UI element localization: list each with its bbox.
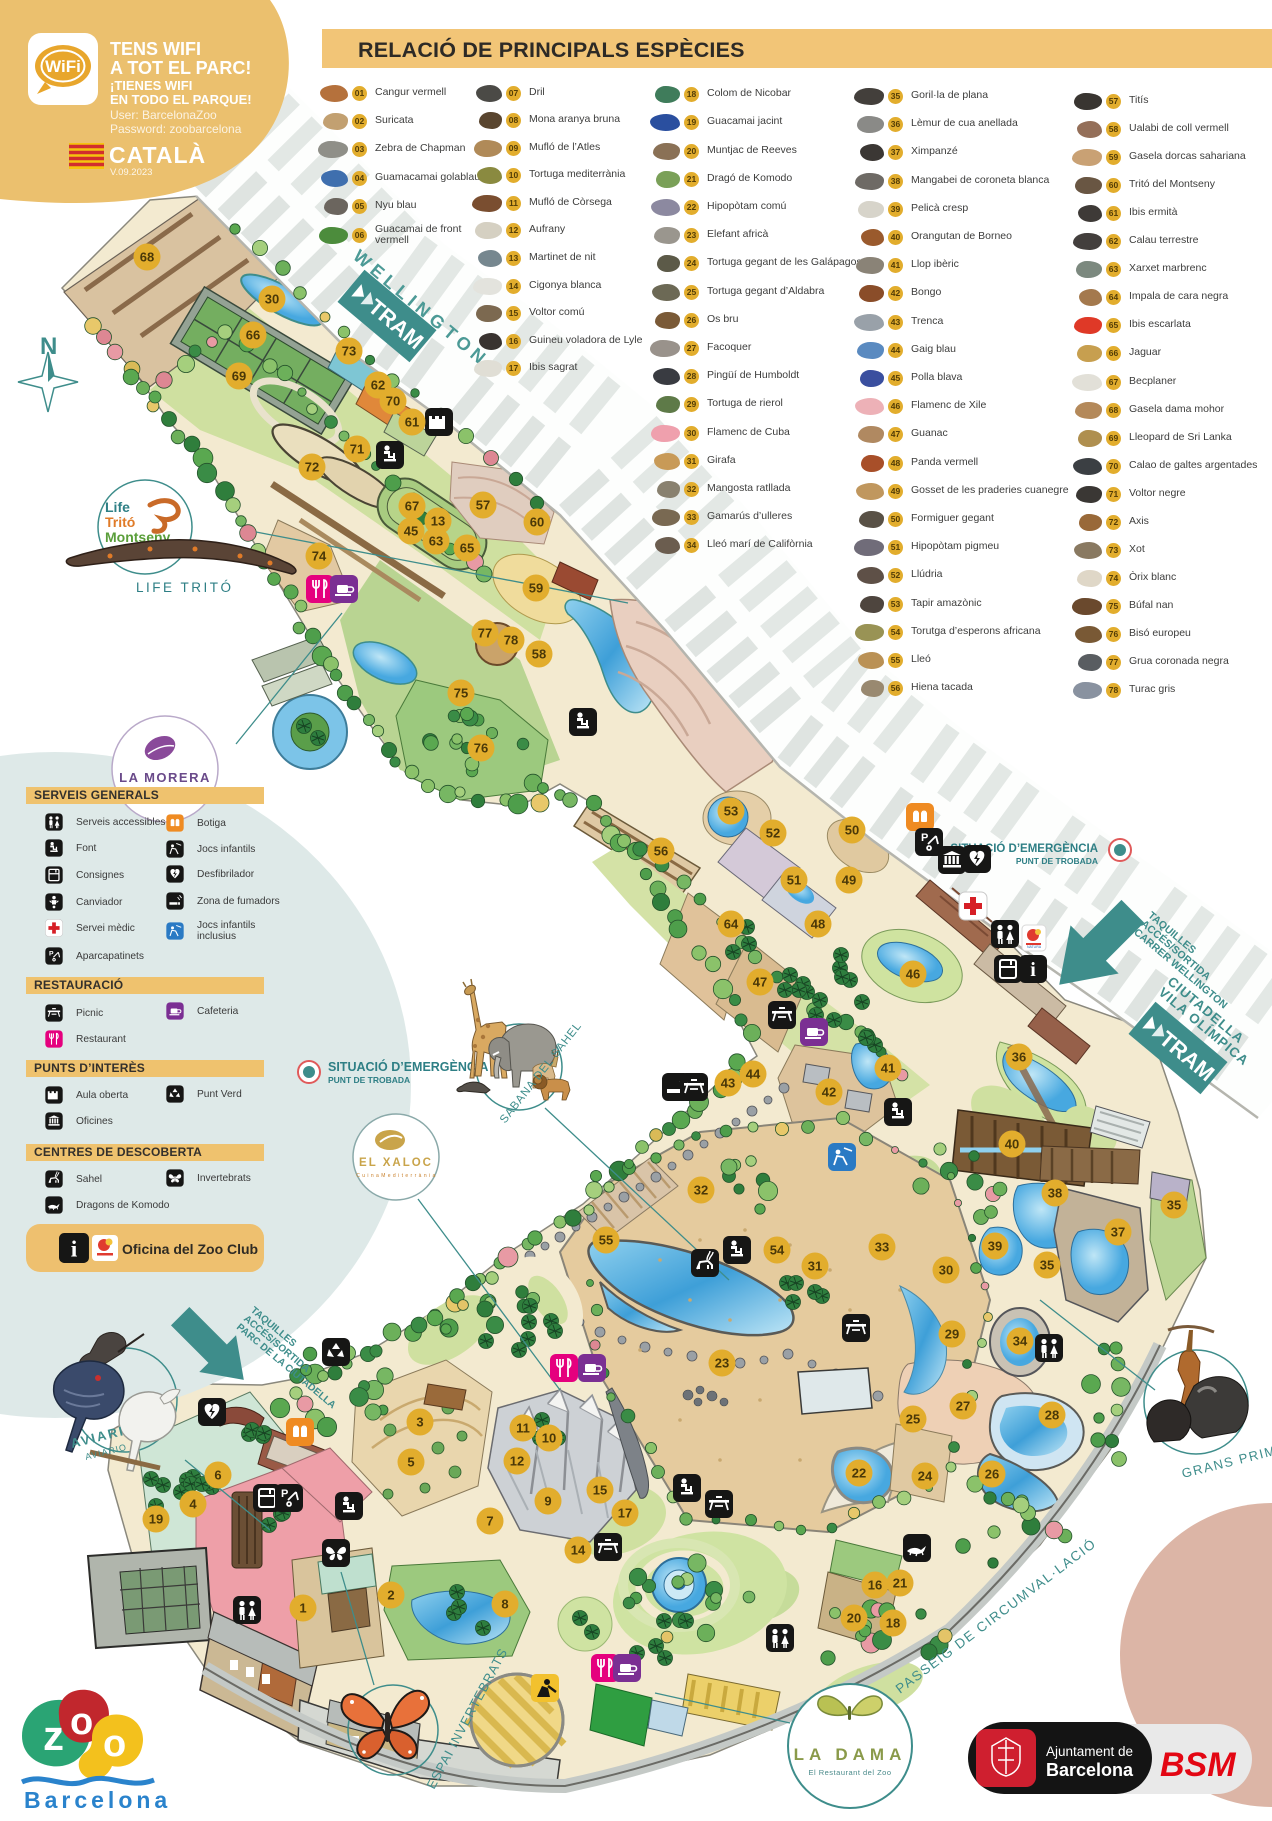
svg-text:21: 21 bbox=[893, 1576, 907, 1591]
svg-text:19: 19 bbox=[149, 1512, 163, 1527]
svg-text:35: 35 bbox=[1167, 1198, 1181, 1213]
svg-text:LA DAMA: LA DAMA bbox=[794, 1745, 907, 1764]
svg-text:71: 71 bbox=[350, 442, 364, 457]
svg-text:50: 50 bbox=[845, 823, 859, 838]
svg-text:66: 66 bbox=[246, 328, 260, 343]
svg-text:70: 70 bbox=[386, 394, 400, 409]
svg-text:43: 43 bbox=[721, 1076, 735, 1091]
svg-text:49: 49 bbox=[842, 873, 856, 888]
svg-text:2: 2 bbox=[387, 1588, 394, 1603]
svg-text:z: z bbox=[43, 1712, 64, 1759]
svg-text:BSM: BSM bbox=[1160, 1746, 1236, 1784]
svg-text:75: 75 bbox=[454, 686, 468, 701]
svg-text:13: 13 bbox=[431, 514, 445, 529]
svg-text:53: 53 bbox=[724, 804, 738, 819]
svg-text:EN TODO EL PARQUE!: EN TODO EL PARQUE! bbox=[110, 92, 252, 107]
svg-text:39: 39 bbox=[988, 1239, 1002, 1254]
svg-text:16: 16 bbox=[868, 1578, 882, 1593]
svg-text:65: 65 bbox=[460, 541, 474, 556]
svg-text:Barcelona: Barcelona bbox=[24, 1787, 171, 1811]
svg-text:62: 62 bbox=[371, 378, 385, 393]
svg-text:40: 40 bbox=[1005, 1137, 1019, 1152]
svg-text:18: 18 bbox=[886, 1616, 900, 1631]
svg-text:58: 58 bbox=[532, 647, 546, 662]
svg-text:74: 74 bbox=[312, 549, 327, 564]
svg-text:45: 45 bbox=[404, 524, 418, 539]
svg-text:52: 52 bbox=[766, 826, 780, 841]
svg-text:63: 63 bbox=[429, 534, 443, 549]
svg-text:76: 76 bbox=[474, 741, 488, 756]
svg-text:Ajuntament de: Ajuntament de bbox=[1046, 1744, 1133, 1759]
svg-text:27: 27 bbox=[956, 1399, 970, 1414]
svg-text:38: 38 bbox=[1048, 1186, 1062, 1201]
svg-text:14: 14 bbox=[571, 1543, 586, 1558]
svg-text:SITUACIÓ D’EMERGÈNCIA: SITUACIÓ D’EMERGÈNCIA bbox=[328, 1059, 488, 1074]
svg-text:12: 12 bbox=[510, 1454, 524, 1469]
svg-text:CATALÀ: CATALÀ bbox=[109, 141, 206, 168]
svg-text:72: 72 bbox=[305, 460, 319, 475]
svg-text:33: 33 bbox=[875, 1240, 889, 1255]
svg-text:77: 77 bbox=[478, 626, 492, 641]
svg-text:PUNT DE TROBADA: PUNT DE TROBADA bbox=[1016, 856, 1098, 866]
svg-text:69: 69 bbox=[232, 369, 246, 384]
svg-text:Barcelona: Barcelona bbox=[1046, 1760, 1134, 1780]
svg-text:73: 73 bbox=[342, 344, 356, 359]
svg-text:17: 17 bbox=[618, 1506, 632, 1521]
svg-text:55: 55 bbox=[599, 1233, 613, 1248]
svg-text:48: 48 bbox=[811, 917, 825, 932]
svg-text:23: 23 bbox=[715, 1356, 729, 1371]
svg-text:C u i n a M e d i t e r r à: C u i n a M e d i t e r r à n i a bbox=[356, 1173, 436, 1179]
svg-text:30: 30 bbox=[939, 1263, 953, 1278]
svg-text:Life: Life bbox=[105, 499, 130, 515]
svg-text:37: 37 bbox=[1111, 1225, 1125, 1240]
svg-text:26: 26 bbox=[985, 1467, 999, 1482]
svg-text:56: 56 bbox=[654, 844, 668, 859]
svg-text:57: 57 bbox=[476, 498, 490, 513]
svg-text:7: 7 bbox=[486, 1514, 493, 1529]
svg-text:4: 4 bbox=[189, 1497, 197, 1512]
svg-text:42: 42 bbox=[822, 1085, 836, 1100]
svg-text:29: 29 bbox=[945, 1327, 959, 1342]
svg-text:A TOT EL PARC!: A TOT EL PARC! bbox=[110, 58, 251, 78]
svg-text:44: 44 bbox=[746, 1067, 761, 1082]
svg-text:User: BarcelonaZoo: User: BarcelonaZoo bbox=[110, 108, 217, 122]
svg-text:Tritó: Tritó bbox=[105, 514, 135, 530]
svg-text:¡TIENES WIFI: ¡TIENES WIFI bbox=[110, 78, 192, 93]
svg-text:34: 34 bbox=[1013, 1334, 1028, 1349]
svg-text:EL XALOC: EL XALOC bbox=[359, 1157, 433, 1169]
svg-text:GRANS PRIMATS: GRANS PRIMATS bbox=[1180, 1436, 1272, 1481]
svg-text:67: 67 bbox=[405, 499, 419, 514]
svg-text:LIFE TRITÓ: LIFE TRITÓ bbox=[136, 580, 234, 595]
svg-text:30: 30 bbox=[265, 292, 279, 307]
svg-text:10: 10 bbox=[542, 1431, 556, 1446]
svg-text:5: 5 bbox=[407, 1455, 414, 1470]
svg-text:1: 1 bbox=[299, 1601, 306, 1616]
svg-text:15: 15 bbox=[593, 1483, 607, 1498]
svg-text:46: 46 bbox=[906, 967, 920, 982]
svg-text:68: 68 bbox=[140, 250, 154, 265]
svg-text:o: o bbox=[70, 1701, 93, 1743]
svg-text:El Restaurant del Zoo: El Restaurant del Zoo bbox=[808, 1768, 891, 1777]
svg-text:8: 8 bbox=[501, 1597, 508, 1612]
svg-text:54: 54 bbox=[770, 1243, 785, 1258]
svg-text:22: 22 bbox=[852, 1466, 866, 1481]
svg-text:9: 9 bbox=[544, 1494, 551, 1509]
svg-text:32: 32 bbox=[694, 1183, 708, 1198]
svg-text:LA MORERA: LA MORERA bbox=[119, 770, 211, 785]
svg-text:11: 11 bbox=[516, 1421, 530, 1436]
svg-text:24: 24 bbox=[918, 1469, 933, 1484]
svg-text:61: 61 bbox=[405, 415, 419, 430]
svg-text:60: 60 bbox=[530, 515, 544, 530]
svg-text:31: 31 bbox=[808, 1259, 822, 1274]
svg-text:6: 6 bbox=[214, 1468, 221, 1483]
svg-text:35: 35 bbox=[1040, 1258, 1054, 1273]
svg-text:o: o bbox=[103, 1723, 126, 1765]
svg-text:i: i bbox=[71, 1237, 78, 1263]
svg-text:59: 59 bbox=[529, 581, 543, 596]
svg-text:V.09.2023: V.09.2023 bbox=[110, 167, 152, 178]
svg-text:25: 25 bbox=[906, 1412, 920, 1427]
svg-text:28: 28 bbox=[1045, 1408, 1059, 1423]
svg-text:Password: zoobarcelona: Password: zoobarcelona bbox=[110, 122, 242, 136]
svg-text:20: 20 bbox=[847, 1611, 861, 1626]
svg-text:WiFi: WiFi bbox=[45, 57, 81, 76]
svg-text:Oficina del Zoo Club: Oficina del Zoo Club bbox=[122, 1241, 258, 1257]
svg-text:41: 41 bbox=[881, 1061, 895, 1076]
svg-text:PUNT DE TROBADA: PUNT DE TROBADA bbox=[328, 1075, 410, 1085]
svg-text:51: 51 bbox=[787, 873, 801, 888]
svg-text:TENS WIFI: TENS WIFI bbox=[110, 39, 201, 59]
svg-text:47: 47 bbox=[753, 975, 767, 990]
svg-text:64: 64 bbox=[724, 917, 739, 932]
svg-text:36: 36 bbox=[1012, 1050, 1026, 1065]
svg-text:3: 3 bbox=[416, 1415, 423, 1430]
svg-text:78: 78 bbox=[504, 633, 518, 648]
